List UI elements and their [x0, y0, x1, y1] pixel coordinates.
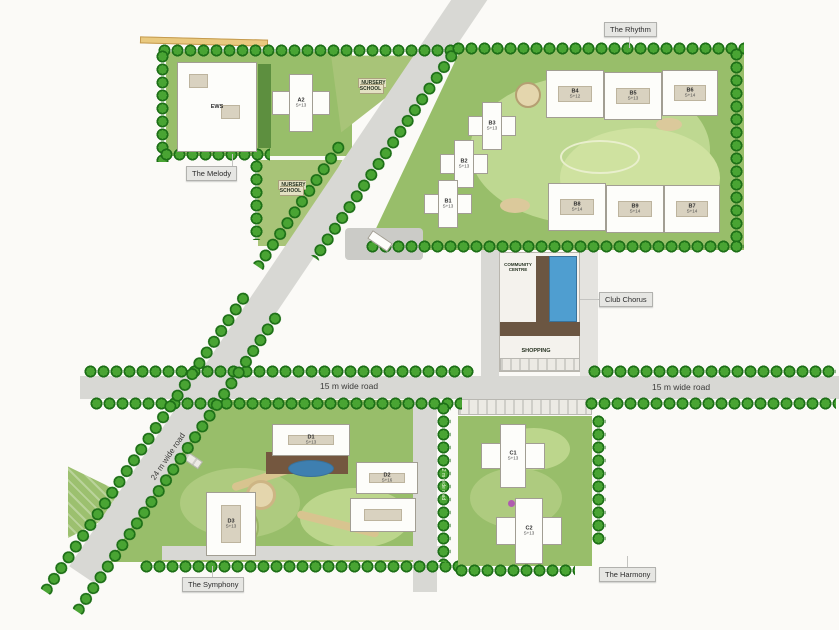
building-b1: B1S+13 — [424, 180, 472, 228]
melody-hedge-strip — [258, 64, 271, 148]
road-club-east — [580, 250, 598, 376]
tree-row-melody-left — [156, 50, 169, 162]
site-plan: EWS A2 S+13 B3S+13 B2S+13 B1S+13 B4S+12 … — [0, 0, 839, 630]
harmony-parking — [458, 399, 592, 415]
area-tag-symphony: The Symphony — [182, 577, 244, 592]
building-ews: EWS — [177, 62, 257, 152]
road-15m-label-left: 15 m wide road — [320, 381, 378, 391]
harmony-shrub — [508, 500, 515, 507]
building-b8: B8S+14 — [548, 183, 606, 231]
building-b6: B6S+14 — [662, 70, 718, 116]
area-tag-club-chorus: Club Chorus — [599, 292, 653, 307]
ews-core — [189, 74, 208, 88]
rhythm-pond-ring — [560, 140, 640, 174]
road-club-west — [481, 250, 499, 376]
leader-club — [580, 299, 599, 300]
tree-row-road15-below-right — [585, 397, 836, 410]
tree-row-road15-above-right — [588, 365, 836, 378]
club-stalls — [500, 358, 580, 371]
area-tag-melody: The Melody — [186, 166, 237, 181]
tree-row-road15-above-left — [84, 365, 474, 378]
area-tag-harmony: The Harmony — [599, 567, 656, 582]
building-b9: B9S+14 — [606, 185, 664, 233]
tree-row-rhythm-bottom — [366, 240, 744, 253]
building-d3: D3S+13 — [206, 492, 256, 556]
road-15m-label-right: 15 m wide road — [652, 382, 710, 392]
tree-row-harmony-right — [592, 415, 606, 545]
nursery-school-top-label: NURSERY SCHOOL — [352, 80, 392, 92]
building-d2-north: D2S+16 — [356, 462, 418, 494]
building-b7: B7S+14 — [664, 185, 720, 233]
tree-row-harmony-bottom — [455, 564, 575, 577]
area-tag-rhythm: The Rhythm — [604, 22, 657, 37]
tree-row-melody-top — [158, 44, 458, 57]
pool-deck-h — [500, 322, 580, 336]
nursery-school-lower-label: NURSERY SCHOOL — [272, 182, 312, 194]
tree-row-road15-below-left — [90, 397, 462, 410]
swimming-pool — [549, 256, 577, 322]
symphony-pond — [288, 460, 334, 477]
road-symphony-south — [162, 546, 444, 560]
leader-rhythm — [629, 36, 630, 48]
rhythm-sand-1 — [500, 198, 530, 213]
road-12m-label: 12 m wide road — [440, 466, 446, 530]
ews-label: EWS — [178, 104, 256, 110]
shopping-label: SHOPPING — [510, 348, 562, 355]
building-d2-south — [350, 498, 416, 532]
building-c2: C2S+13 — [496, 498, 562, 564]
building-c1: C1S+13 — [481, 424, 545, 488]
building-d1: D1S+13 — [272, 424, 350, 456]
community-centre-label: COMMUNITY CENTRE — [501, 262, 535, 273]
tree-row-rhythm-right — [730, 48, 743, 246]
building-b5: B5S+13 — [604, 72, 662, 120]
tree-row-symphony-bottom — [140, 560, 458, 573]
rhythm-round-garden — [515, 82, 541, 108]
tree-row-rhythm-top — [452, 42, 744, 55]
ews-core-2 — [221, 105, 240, 119]
tree-row-nursery-left — [250, 160, 263, 240]
building-b4: B4S+12 — [546, 70, 604, 118]
building-a2: A2 S+13 — [272, 74, 330, 132]
